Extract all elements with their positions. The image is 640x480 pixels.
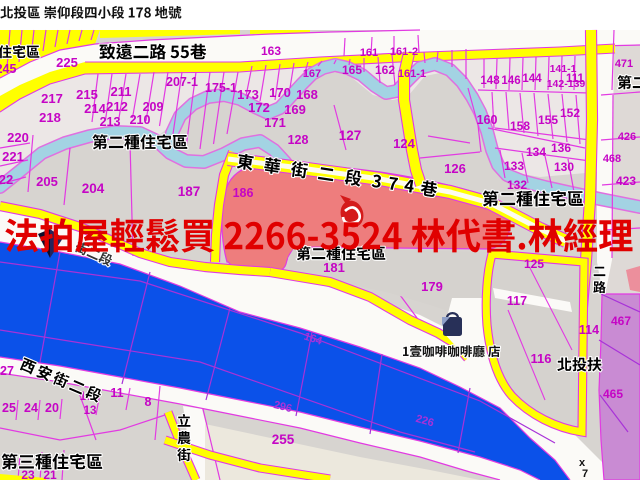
svg-text:132: 132: [507, 178, 527, 192]
svg-text:161: 161: [360, 47, 378, 59]
svg-text:170: 170: [269, 85, 291, 100]
svg-text:24: 24: [24, 401, 38, 415]
svg-text:114: 114: [579, 323, 599, 337]
svg-text:218: 218: [39, 110, 61, 125]
svg-text:225: 225: [56, 55, 78, 70]
svg-text:207-1: 207-1: [166, 75, 198, 89]
svg-text:124: 124: [393, 136, 415, 151]
svg-text:423: 423: [616, 174, 636, 188]
svg-text:125: 125: [524, 257, 544, 271]
svg-text:175-1: 175-1: [205, 81, 237, 95]
svg-text:220: 220: [7, 130, 29, 145]
svg-text:210: 210: [130, 113, 151, 127]
svg-text:426: 426: [618, 131, 636, 143]
svg-text:181: 181: [323, 260, 345, 275]
svg-text:163: 163: [261, 44, 281, 58]
svg-text:217: 217: [41, 91, 63, 106]
svg-text:187: 187: [178, 184, 201, 199]
svg-text:13: 13: [84, 405, 97, 417]
svg-text:130: 130: [554, 160, 574, 174]
svg-text:161-2: 161-2: [390, 46, 418, 58]
svg-text:221: 221: [2, 149, 24, 164]
svg-text:7: 7: [582, 468, 588, 480]
svg-text:133: 133: [504, 159, 524, 173]
svg-text:162: 162: [375, 63, 395, 77]
svg-text:169: 169: [284, 102, 306, 117]
svg-text:468: 468: [603, 153, 621, 165]
svg-text:8: 8: [145, 395, 152, 409]
svg-text:171: 171: [264, 115, 286, 130]
svg-text:165: 165: [342, 63, 362, 77]
svg-text:128: 128: [288, 133, 309, 147]
svg-text:111: 111: [566, 73, 585, 85]
svg-text:148: 148: [480, 75, 500, 87]
svg-text:20: 20: [45, 401, 59, 415]
svg-text:117: 117: [507, 294, 527, 308]
svg-text:160: 160: [477, 113, 498, 127]
svg-text:214: 214: [84, 101, 106, 116]
svg-text:155: 155: [538, 113, 558, 127]
svg-text:136: 136: [551, 141, 571, 155]
svg-text:22: 22: [0, 172, 13, 187]
svg-text:127: 127: [339, 128, 362, 143]
svg-text:205: 205: [36, 174, 58, 189]
svg-text:23: 23: [21, 468, 35, 480]
svg-text:212: 212: [106, 99, 128, 114]
svg-text:471: 471: [615, 58, 633, 70]
svg-text:467: 467: [611, 314, 631, 328]
svg-text:172: 172: [248, 100, 270, 115]
svg-text:27: 27: [0, 364, 14, 378]
svg-text:134: 134: [526, 145, 546, 159]
svg-text:158: 158: [510, 119, 530, 133]
svg-text:168: 168: [296, 87, 318, 102]
svg-text:255: 255: [272, 432, 295, 447]
svg-text:186: 186: [233, 186, 254, 200]
svg-text:144: 144: [522, 73, 542, 85]
svg-text:209: 209: [143, 100, 164, 114]
svg-text:25: 25: [2, 401, 16, 415]
svg-text:211: 211: [111, 84, 132, 99]
svg-text:465: 465: [603, 387, 623, 401]
svg-text:213: 213: [100, 115, 121, 129]
svg-text:215: 215: [76, 87, 98, 102]
svg-text:167: 167: [303, 68, 321, 80]
svg-text:116: 116: [531, 351, 552, 366]
svg-text:179: 179: [421, 279, 443, 294]
svg-text:161-1: 161-1: [398, 68, 426, 80]
svg-text:152: 152: [560, 106, 580, 120]
svg-text:204: 204: [82, 181, 105, 196]
svg-text:11: 11: [110, 386, 123, 400]
svg-text:245: 245: [0, 62, 16, 76]
svg-text:146: 146: [501, 75, 520, 87]
svg-text:126: 126: [444, 161, 466, 176]
